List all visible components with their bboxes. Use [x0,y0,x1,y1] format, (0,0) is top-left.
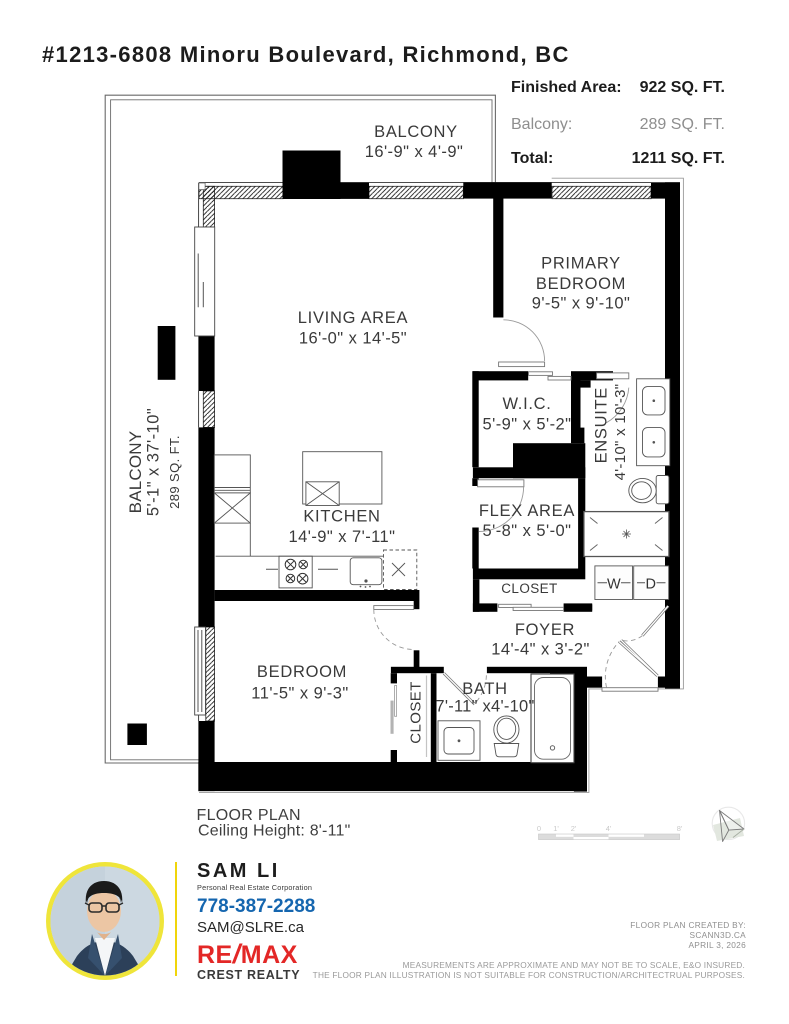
svg-text:14'-4" x 3'-2": 14'-4" x 3'-2" [491,641,590,659]
svg-text:2': 2' [571,824,577,833]
svg-text:7'-11" x4'-10": 7'-11" x4'-10" [435,698,534,716]
svg-text:11'-5" x 9'-3": 11'-5" x 9'-3" [251,685,348,703]
svg-text:0: 0 [537,824,541,833]
svg-text:4': 4' [606,824,612,833]
svg-text:BATH: BATH [462,680,508,698]
svg-text:KITCHEN: KITCHEN [303,508,380,526]
svg-text:4'-10" x 10'-3": 4'-10" x 10'-3" [612,384,629,481]
svg-text:9'-5" x 9'-10": 9'-5" x 9'-10" [532,295,631,313]
svg-text:CLOSET: CLOSET [501,581,557,596]
svg-text:BEDROOM: BEDROOM [257,663,347,681]
svg-text:289 SQ. FT.: 289 SQ. FT. [167,435,182,509]
svg-text:LIVING AREA: LIVING AREA [298,309,408,327]
svg-text:1': 1' [553,824,559,833]
svg-text:FOYER: FOYER [515,621,575,639]
svg-text:CLOSET: CLOSET [408,681,425,743]
svg-text:16'-0" x 14'-5": 16'-0" x 14'-5" [299,330,407,348]
svg-text:5'-1" x 37'-10": 5'-1" x 37'-10" [145,408,163,516]
svg-text:FLEX AREA: FLEX AREA [479,502,575,520]
svg-text:14'-9" x 7'-11": 14'-9" x 7'-11" [288,528,395,546]
svg-text:W: W [607,576,621,592]
svg-text:BEDROOM: BEDROOM [536,275,626,293]
svg-text:16'-9" x 4'-9": 16'-9" x 4'-9" [365,143,464,161]
svg-text:Ceiling Height: 8'-11": Ceiling Height: 8'-11" [198,823,350,840]
svg-text:PRIMARY: PRIMARY [541,255,621,273]
svg-text:W.I.C.: W.I.C. [502,395,551,413]
svg-text:BALCONY: BALCONY [126,431,145,514]
svg-text:ENSUITE: ENSUITE [593,387,611,463]
svg-text:5'-8" x 5'-0": 5'-8" x 5'-0" [483,522,572,540]
svg-text:D: D [646,576,656,592]
svg-text:8': 8' [677,824,683,833]
svg-text:5'-9" x 5'-2": 5'-9" x 5'-2" [483,416,572,434]
svg-text:FLOOR PLAN: FLOOR PLAN [197,807,301,824]
svg-text:BALCONY: BALCONY [374,123,458,141]
